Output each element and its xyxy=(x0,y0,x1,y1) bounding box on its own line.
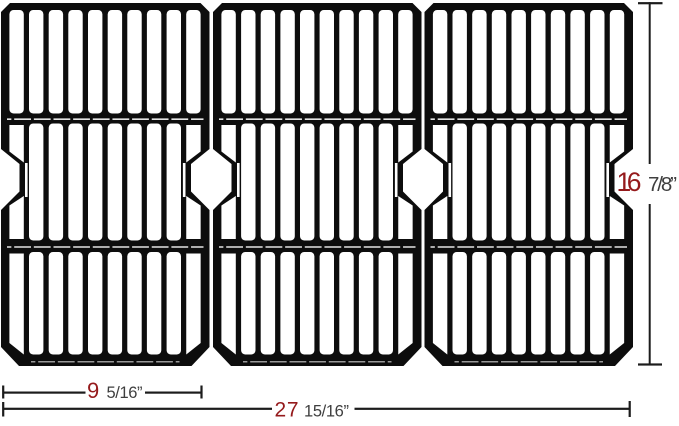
svg-text:15/16”: 15/16” xyxy=(304,403,349,421)
svg-text:27: 27 xyxy=(275,399,299,422)
svg-text:16: 16 xyxy=(617,167,642,197)
svg-text:7/8”: 7/8” xyxy=(648,173,677,196)
svg-text:5/16”: 5/16” xyxy=(107,384,143,402)
svg-text:9: 9 xyxy=(87,378,99,403)
